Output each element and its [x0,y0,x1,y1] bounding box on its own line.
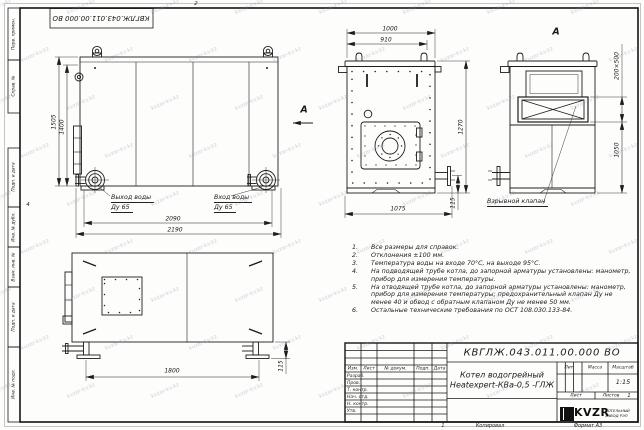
product-name-line2: Heatexpert-КВа-0,5 -ГЛЖ [450,381,554,390]
row-prov: Пров. [347,381,360,386]
doc-number: КВГЛЖ.043.011.00.000 ВО [464,347,621,358]
side-view-bottom [62,253,273,359]
col-izm: Изм. [348,366,359,371]
note-item: 5.На отводящей трубе котла, до запорной … [352,284,632,308]
drawing-linework [0,0,644,430]
dim-910: 910 [380,37,391,44]
water-outlet-label: Выход воды [111,194,154,203]
water-inlet-label: Вход воды [214,194,252,203]
frame-box-perv-primen: Перв. примен. [12,18,17,50]
front-view [339,53,456,193]
zone-marker-top: 2 [194,1,198,7]
section-arrow-label: А [300,105,307,116]
lit-label: Лит. [564,366,574,371]
top-stamp-doc-number: КВГЛЖ.043.011.00.000 ВО [53,14,150,22]
water-inlet-dn: Ду 65 [214,204,236,213]
frame-box-vzam-inv: Взам. инв. № [12,252,17,281]
col-ndokum: № докум. [384,366,406,371]
note-item: 2.Отклонения ±100 мм. [352,252,632,260]
frame-box-inv-dubl: Инв. № дубл. [12,212,17,241]
col-list: Лист [363,366,374,371]
row-nachotd: Нач. отд. [347,395,369,400]
col-podp: Подп. [416,366,430,371]
sheets-value: 1 [627,393,631,399]
view-a-label: А [552,27,559,38]
frame-box-podp-data-2: Подп. и дата [12,302,17,331]
mass-label: Масса [588,366,602,371]
scale-label: Масштаб [612,366,633,371]
note-item: 1.Все размеры для справок. [352,244,632,252]
dim-200x500: 200×500 [614,52,621,80]
note-item: 3.Температура воды на входе 70°С, на вых… [352,260,632,268]
format-label: Формат А3 [574,423,602,429]
dim-1400: 1400 [59,119,66,134]
rear-view [488,53,597,193]
dim-115-bottom: 115 [278,360,285,371]
kvzr-logo-icon [560,407,574,421]
technical-notes: 1.Все размеры для справок. 2.Отклонения … [352,244,632,315]
dim-2090: 2090 [165,216,180,223]
row-utv: Утв. [347,409,356,414]
scale-value: 1:15 [616,378,631,386]
explosion-valve-callout: Взрывной клапан [487,198,548,207]
frame-box-sprav-n: Справ. № [12,76,17,97]
dim-1075: 1075 [390,206,405,213]
dim-2190: 2190 [167,227,182,234]
side-view-bottom-dims [86,342,290,381]
dim-1800: 1800 [164,368,179,375]
note-item: 4.На подводящей трубе котла, до запорной… [352,268,632,284]
sheet-label: Лист [570,393,581,398]
dim-1505: 1505 [51,114,58,129]
side-view-top [74,46,281,193]
frame-box-podp-data-1: Подп. и дата [12,162,17,191]
dim-1050: 1050 [614,142,621,157]
dim-1270: 1270 [458,119,465,134]
col-data: Дата [434,366,446,371]
frame-box-inv-podl: Инв. № подл. [12,369,17,399]
dim-1000: 1000 [382,26,397,33]
dim-115-front: 115 [450,197,457,208]
front-view-dims [345,29,470,218]
row-razrab: Разраб. [347,374,365,379]
product-name-line1: Котел водогрейный [460,370,544,379]
row-tkontr: Т. контр. [347,388,368,393]
drawing-sheet: 2 4 1 Копировал Формат А3 КВГЛЖ.043.011.… [0,0,644,430]
row-nkontr: Н. контр. [347,402,369,407]
company-line2: ЗАВОД РЭП [605,413,628,418]
zone-marker-left: 4 [26,202,30,208]
note-item: 6.Остальные технические требования по ОС… [352,307,632,315]
copy-label: Копировал [476,423,505,429]
side-view-top-dims [55,57,313,238]
sheets-label: Листов [603,393,620,398]
fold-mark: 1 [441,423,444,429]
water-outlet-dn: Ду 65 [111,204,133,213]
